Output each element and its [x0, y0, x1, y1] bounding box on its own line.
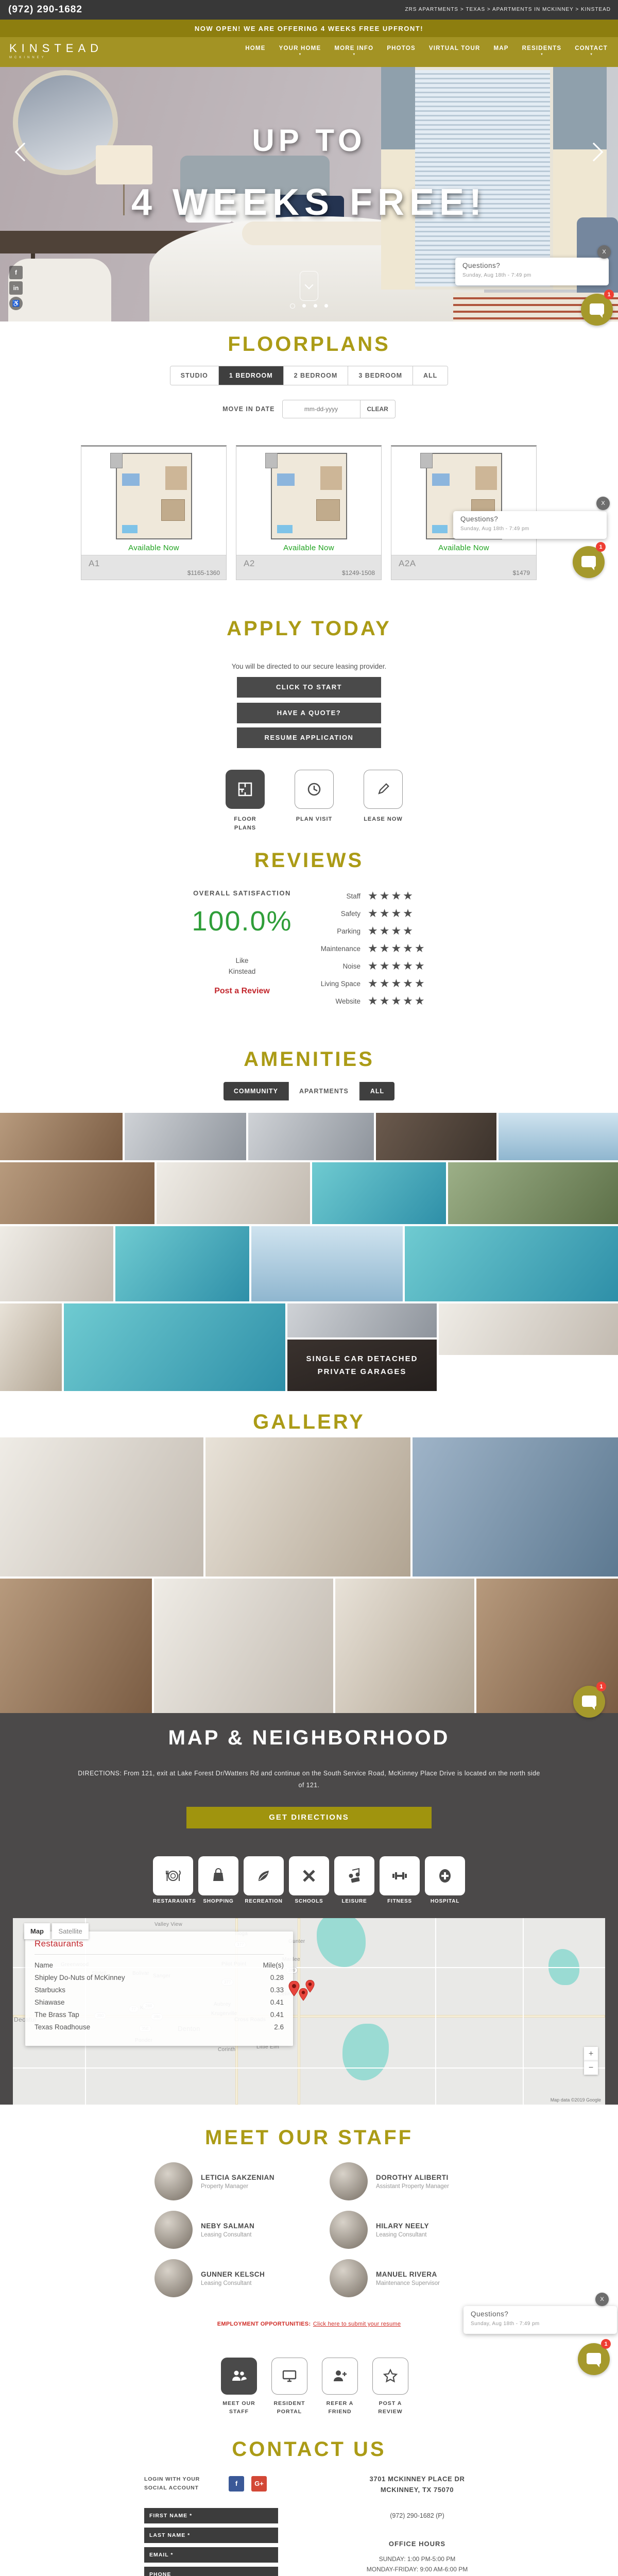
logo-text: KINSTEAD — [9, 42, 103, 55]
chat-icon-tail — [591, 1705, 595, 1710]
quick-link-label: LEASE NOW — [362, 815, 405, 824]
office-hours-sunday: SUNDAY: 1:00 PM-5:00 PM — [340, 2554, 494, 2564]
poi-category-buttons — [153, 1856, 465, 1895]
facebook-login-button[interactable]: f — [229, 2476, 244, 2492]
medical-cross-icon — [435, 1866, 455, 1886]
social-login-label: LOGIN WITH YOUR SOCIAL ACCOUNT — [144, 2475, 221, 2493]
chat-popup-time: Sunday, Aug 18th - 7:49 pm — [471, 2321, 610, 2327]
fitness-category-button[interactable] — [380, 1856, 420, 1895]
contact-section: CONTACT US LOGIN WITH YOUR SOCIAL ACCOUN… — [0, 2421, 618, 2576]
office-hours-title: OFFICE HOURS — [340, 2540, 494, 2548]
meet-our-staff-button[interactable] — [221, 2358, 257, 2395]
amenity-photo[interactable] — [125, 1113, 246, 1160]
staff-member: DOROTHY ALIBERTIAssistant Property Manag… — [330, 2162, 479, 2200]
staff-quick-links: MEET OUR STAFF RESIDENT PORTAL REFER A F… — [0, 2349, 618, 2421]
floorplan-price: $1165-1360 — [187, 569, 220, 577]
refer-a-friend-button[interactable] — [322, 2358, 358, 2395]
amenities-tabs: COMMUNITY APARTMENTS ALL — [224, 1082, 394, 1100]
map-section-title: MAP & NEIGHBORHOOD — [0, 1726, 618, 1750]
map-pin-icon[interactable] — [305, 1980, 315, 1993]
garage-tile-line1: SINGLE CAR DETACHED — [306, 1352, 418, 1366]
floorplan-card-a2[interactable]: Available Now A2 $1249-1508 — [236, 445, 382, 580]
amenity-photo[interactable] — [287, 1303, 437, 1337]
floorplan-image — [116, 453, 192, 539]
tab-1-bedroom[interactable]: 1 BEDROOM — [219, 366, 284, 385]
breadcrumb-mckinney[interactable]: APARTMENTS IN MCKINNEY — [492, 7, 574, 12]
directions-text: DIRECTIONS: From 121, exit at Lake Fores… — [77, 1768, 541, 1791]
google-login-button[interactable]: G+ — [251, 2476, 267, 2492]
carousel-dot[interactable] — [314, 304, 317, 308]
poi-category-labels: RESTARAUNTS SHOPPING RECREATION SCHOOLS … — [153, 1899, 465, 1904]
clear-date-button[interactable]: CLEAR — [360, 400, 395, 418]
amenity-photo[interactable] — [0, 1226, 113, 1301]
gallery-photo[interactable] — [205, 1437, 410, 1577]
apply-title: APPLY TODAY — [0, 617, 618, 640]
poi-table-row[interactable]: Texas Roadhouse2.6 — [35, 2021, 284, 2033]
page: (972) 290-1682 ZRS APARTMENTS > TEXAS > … — [0, 0, 618, 2576]
restaurant-icon — [163, 1866, 183, 1886]
floorplans-tabs-wrap: STUDIO 1 BEDROOM 2 BEDROOM 3 BEDROOM ALL — [0, 366, 618, 385]
staff-avatar — [330, 2162, 368, 2200]
chat-popup-title: Questions? — [462, 262, 602, 269]
rating-row: Safety★★★★ — [278, 905, 426, 922]
chat-unread-badge: 1 — [601, 2339, 611, 2349]
promo-banner-text: NOW OPEN! WE ARE OFFERING 4 WEEKS FREE U… — [195, 25, 423, 32]
gallery-photo[interactable] — [413, 1437, 618, 1577]
map-town-label: Valley View — [154, 1922, 182, 1927]
employment-link[interactable]: Click here to submit your resume — [313, 2321, 401, 2327]
site-header: KINSTEAD MCKINNEY HOME▼ YOUR HOME▼ MORE … — [0, 37, 618, 67]
gallery-photo[interactable] — [0, 1579, 152, 1713]
reviews-title: REVIEWS — [0, 849, 618, 872]
chat-icon-tail — [595, 2363, 599, 2367]
amenity-photo[interactable] — [448, 1162, 618, 1224]
road-line — [13, 2067, 605, 2069]
map-section: MAP & NEIGHBORHOOD DIRECTIONS: From 121,… — [0, 1713, 618, 2105]
carousel-dots — [0, 301, 618, 311]
floorplans-title: FLOORPLANS — [0, 333, 618, 356]
chat-unread-badge: 1 — [596, 542, 606, 552]
chat-bubble-button[interactable]: 1 — [573, 542, 605, 579]
divider — [35, 1954, 284, 1955]
map-pin-icon[interactable] — [288, 1981, 300, 1996]
amenity-photo[interactable] — [312, 1162, 446, 1224]
facebook-icon[interactable]: f — [9, 266, 23, 279]
breadcrumb: ZRS APARTMENTS > TEXAS > APARTMENTS IN M… — [405, 7, 611, 12]
scroll-down-button[interactable] — [300, 271, 318, 301]
rating-row: Parking★★★★ — [278, 922, 426, 940]
tab-apartments[interactable]: APARTMENTS — [289, 1082, 359, 1100]
poi-panel-title: Restaurants — [35, 1939, 284, 1949]
chat-icon-tail — [590, 566, 594, 570]
move-in-row: MOVE IN DATE CLEAR — [0, 400, 618, 418]
amenity-photo[interactable] — [499, 1113, 618, 1160]
rating-row: Maintenance★★★★★ — [278, 940, 426, 957]
tab-2-bedroom[interactable]: 2 BEDROOM — [284, 366, 349, 385]
office-hours-weekday: MONDAY-FRIDAY: 9:00 AM-6:00 PM — [340, 2564, 494, 2574]
apply-note: You will be directed to our secure leasi… — [0, 663, 618, 670]
chat-icon-tail — [598, 313, 603, 318]
amenity-photo[interactable] — [115, 1226, 249, 1301]
amenity-photo[interactable] — [0, 1113, 123, 1160]
availability-status: Available Now — [81, 544, 226, 552]
floorplan-image — [271, 453, 347, 539]
floorplan-card-footer: A2 $1249-1508 — [236, 555, 381, 580]
quick-link-label: POST A REVIEW — [372, 2400, 409, 2416]
poi-table-row[interactable]: Starbucks0.33 — [35, 1984, 284, 1996]
road-line — [435, 1918, 436, 2105]
tab-all[interactable]: ALL — [359, 1082, 394, 1100]
staff-quick-boxes: MEET OUR STAFF RESIDENT PORTAL REFER A F… — [220, 2358, 409, 2416]
chevron-down-icon: ▼ — [352, 53, 355, 56]
pencil-icon — [373, 779, 393, 800]
amenities-title: AMENITIES — [0, 1048, 618, 1071]
tab-studio[interactable]: STUDIO — [170, 366, 219, 385]
staff-avatar — [154, 2162, 193, 2200]
school-supplies-icon — [299, 1866, 319, 1886]
schools-category-button[interactable] — [289, 1856, 329, 1895]
star-rating: ★★★★★ — [368, 977, 426, 990]
add-person-icon — [330, 2366, 350, 2386]
chevron-down-icon: ▼ — [590, 53, 593, 56]
rating-row: Living Space★★★★★ — [278, 975, 426, 992]
star-rating: ★★★★★ — [368, 959, 426, 973]
hospital-category-button[interactable] — [425, 1856, 465, 1895]
music-ticket-icon — [344, 1866, 365, 1886]
chat-popup-title: Questions? — [471, 2310, 610, 2318]
chat-popup[interactable]: Questions? Sunday, Aug 18th - 7:49 pm — [453, 511, 607, 539]
tab-3-bedroom[interactable]: 3 BEDROOM — [348, 366, 413, 385]
map-zoom-control: + − — [584, 2047, 598, 2075]
highway-289 — [298, 1918, 300, 2105]
carousel-dot[interactable] — [324, 304, 328, 308]
shopping-category-button[interactable] — [198, 1856, 238, 1895]
contact-address-line1: 3701 MCKINNEY PLACE DR — [340, 2475, 494, 2483]
poi-results-panel: Restaurants NameMile(s) Shipley Do-Nuts … — [25, 1931, 293, 2046]
floorplan-name: A2A — [399, 558, 416, 569]
ratings-list: Staff★★★★ Safety★★★★ Parking★★★★ Mainten… — [278, 887, 426, 1010]
chat-bubble-button[interactable]: 1 — [578, 2339, 610, 2376]
apply-section: APPLY TODAY You will be directed to our … — [0, 581, 618, 829]
leisure-category-button[interactable] — [334, 1856, 374, 1895]
chat-bubble-button[interactable]: 1 — [573, 1682, 605, 1719]
recreation-category-button[interactable] — [244, 1856, 284, 1895]
availability-status: Available Now — [236, 544, 381, 552]
amenities-photo-grid: SINGLE CAR DETACHED PRIVATE GARAGES — [0, 1113, 618, 1391]
staff-member: GUNNER KELSCHLeasing Consultant — [154, 2259, 304, 2297]
breadcrumb-separator: > — [575, 7, 579, 12]
quick-link-label: PLAN VISIT — [293, 815, 336, 824]
staff-member: NEBY SALMANLeasing Consultant — [154, 2211, 304, 2249]
contact-info-block: 3701 MCKINNEY PLACE DR MCKINNEY, TX 7507… — [340, 2475, 494, 2576]
floorplan-icon — [235, 779, 255, 800]
employment-prefix: EMPLOYMENT OPPORTUNITIES: — [217, 2321, 311, 2327]
carousel-dot-active[interactable] — [290, 303, 295, 309]
contact-address-line2: MCKINNEY, TX 75070 — [340, 2486, 494, 2494]
nav-item-photos[interactable]: PHOTOS▼ — [387, 45, 416, 56]
amenity-photo[interactable] — [157, 1162, 310, 1224]
floorplans-tabs: STUDIO 1 BEDROOM 2 BEDROOM 3 BEDROOM ALL — [170, 366, 449, 385]
chat-popup-time: Sunday, Aug 18th - 7:49 pm — [460, 526, 599, 532]
monitor-icon — [279, 2366, 300, 2386]
carousel-dot[interactable] — [302, 304, 306, 308]
gallery-photo[interactable] — [335, 1579, 474, 1713]
plan-visit-quick-button[interactable] — [295, 770, 334, 809]
reviews-section: REVIEWS OVERALL SATISFACTION 100.0% Like… — [0, 829, 618, 1041]
road-line — [523, 1918, 524, 2105]
amenities-tabs-wrap: COMMUNITY APARTMENTS ALL — [0, 1082, 618, 1100]
linkedin-icon[interactable]: in — [9, 281, 23, 295]
rating-row: Staff★★★★ — [278, 887, 426, 905]
dumbbell-icon — [389, 1866, 410, 1886]
map-type-map-button[interactable]: Map — [24, 1923, 50, 1939]
leaf-icon — [253, 1866, 274, 1886]
rating-row: Noise★★★★★ — [278, 957, 426, 975]
have-a-quote-button[interactable]: HAVE A QUOTE? — [237, 703, 381, 723]
garage-tile-line2: PRIVATE GARAGES — [318, 1365, 407, 1379]
floorplan-price: $1249-1508 — [342, 569, 375, 577]
star-rating: ★★★★ — [368, 907, 415, 920]
social-login-row: LOGIN WITH YOUR SOCIAL ACCOUNT f G+ — [144, 2475, 267, 2493]
clock-icon — [304, 779, 324, 800]
gallery-photo[interactable] — [0, 1437, 203, 1577]
tab-community[interactable]: COMMUNITY — [224, 1082, 289, 1100]
lease-now-quick-button[interactable] — [364, 770, 403, 809]
star-rating: ★★★★★ — [368, 942, 426, 955]
move-in-date-input[interactable] — [283, 400, 360, 418]
get-directions-button[interactable]: GET DIRECTIONS — [186, 1807, 432, 1828]
nav-item-residents[interactable]: RESIDENTS▼ — [522, 45, 562, 56]
amenity-photo[interactable] — [0, 1162, 154, 1224]
staff-avatar — [330, 2259, 368, 2297]
post-a-review-button[interactable] — [372, 2358, 408, 2395]
chat-unread-badge: 1 — [596, 1682, 606, 1691]
hero-promo-line1: UP TO — [0, 123, 618, 158]
amenity-photo[interactable] — [251, 1226, 403, 1301]
map-town-label: Corinth — [218, 2047, 235, 2053]
chat-popup[interactable]: Questions? Sunday, Aug 18th - 7:49 pm — [463, 2306, 617, 2334]
map-canvas[interactable]: Rosston Valley View Tioga Gunter Pilot P… — [13, 1918, 605, 2105]
amenity-photo[interactable] — [0, 1303, 62, 1391]
amenity-photo[interactable] — [439, 1303, 618, 1355]
chevron-down-icon: ▼ — [540, 53, 543, 56]
map-type-satellite-button[interactable]: Satellite — [52, 1923, 88, 1939]
breadcrumb-separator: > — [487, 7, 491, 12]
garage-amenity-tile[interactable]: SINGLE CAR DETACHED PRIVATE GARAGES — [287, 1340, 437, 1391]
star-rating: ★★★★ — [368, 924, 415, 938]
chat-close-button[interactable]: X — [596, 497, 610, 510]
apply-quick-links: FLOOR PLANS PLAN VISIT LEASE NOW — [224, 770, 405, 832]
nav-item-contact[interactable]: CONTACT▼ — [575, 45, 608, 56]
nav-item-more-info[interactable]: MORE INFO▼ — [334, 45, 373, 56]
poi-table-header: NameMile(s) — [35, 1959, 284, 1971]
poi-table-row[interactable]: The Brass Tap0.41 — [35, 2008, 284, 2021]
amenity-photo[interactable] — [64, 1303, 285, 1391]
chat-popup-title: Questions? — [460, 515, 599, 523]
staff-avatar — [330, 2211, 368, 2249]
nav-item-map[interactable]: MAP▼ — [493, 45, 508, 56]
staff-avatar — [154, 2259, 193, 2297]
hero-throw-decor — [242, 222, 397, 245]
staff-member: HILARY NEELYLeasing Consultant — [330, 2211, 479, 2249]
chat-unread-badge: 1 — [604, 290, 614, 299]
phone-field[interactable] — [144, 2567, 278, 2576]
quick-link-label: REFER A FRIEND — [321, 2400, 358, 2416]
lake-shape — [317, 1918, 366, 1967]
gallery-section: GALLERY — [0, 1401, 618, 1713]
star-rating: ★★★★★ — [368, 994, 426, 1008]
first-name-field[interactable] — [144, 2508, 278, 2523]
last-name-field[interactable] — [144, 2528, 278, 2543]
staff-avatar — [154, 2211, 193, 2249]
staff-title: MEET OUR STAFF — [0, 2126, 618, 2149]
hero-promo-line2: 4 WEEKS FREE! — [0, 181, 618, 224]
zoom-in-button[interactable]: + — [584, 2047, 598, 2061]
chevron-down-icon: ▼ — [298, 53, 301, 56]
staff-member: MANUEL RIVERAMaintenance Supervisor — [330, 2259, 479, 2297]
chat-popup-time: Sunday, Aug 18th - 7:49 pm — [462, 273, 602, 278]
zoom-out-button[interactable]: − — [584, 2061, 598, 2075]
star-rating: ★★★★ — [368, 889, 415, 903]
shopping-bag-icon — [208, 1866, 229, 1886]
move-in-date-label: MOVE IN DATE — [222, 405, 274, 413]
resume-application-button[interactable]: RESUME APPLICATION — [237, 727, 381, 748]
promo-banner: NOW OPEN! WE ARE OFFERING 4 WEEKS FREE U… — [0, 20, 618, 37]
email-field[interactable] — [144, 2547, 278, 2563]
map-attribution: Map data ©2019 Google — [551, 2097, 601, 2103]
nav-item-your-home[interactable]: YOUR HOME▼ — [279, 45, 321, 56]
nav-item-home[interactable]: HOME▼ — [245, 45, 265, 56]
poi-table-row[interactable]: Shiawase0.41 — [35, 1996, 284, 2008]
hero-chair-decor — [8, 259, 111, 321]
breadcrumb-kinstead[interactable]: KINSTEAD — [581, 7, 611, 12]
gallery-photo-grid — [0, 1437, 618, 1713]
tab-all[interactable]: ALL — [413, 366, 448, 385]
star-icon — [380, 2366, 401, 2386]
rating-row: Website★★★★★ — [278, 992, 426, 1010]
chat-bubble-button[interactable]: 1 — [581, 290, 613, 327]
floorplan-card-a1[interactable]: Available Now A1 $1165-1360 — [81, 445, 227, 580]
quick-link-label: RESIDENT PORTAL — [271, 2400, 308, 2416]
nav-item-virtual-tour[interactable]: VIRTUAL TOUR▼ — [429, 45, 480, 56]
floor-plans-quick-button[interactable] — [226, 770, 265, 809]
restaurants-category-button[interactable] — [153, 1856, 193, 1895]
floorplan-name: A1 — [89, 558, 100, 569]
map-type-control: Map Satellite — [24, 1923, 89, 1939]
floorplan-price: $1479 — [513, 569, 530, 577]
main-nav: HOME▼ YOUR HOME▼ MORE INFO▼ PHOTOS▼ VIRT… — [245, 45, 608, 56]
floorplan-card-footer: A2A $1479 — [391, 555, 536, 580]
contact-title: CONTACT US — [0, 2438, 618, 2461]
poi-table-row[interactable]: Shipley Do-Nuts of McKinney0.28 — [35, 1971, 284, 1984]
quick-link-label: MEET OUR STAFF — [220, 2400, 257, 2416]
chat-close-button[interactable]: X — [597, 245, 611, 259]
people-icon — [229, 2366, 249, 2386]
breadcrumb-zrs[interactable]: ZRS APARTMENTS — [405, 7, 458, 12]
floorplan-card-footer: A1 $1165-1360 — [81, 555, 226, 580]
breadcrumb-texas[interactable]: TEXAS — [466, 7, 485, 12]
chat-popup[interactable]: Questions? Sunday, Aug 18th - 7:49 pm — [455, 258, 609, 285]
phone-number[interactable]: (972) 290-1682 — [8, 4, 82, 15]
chevron-down-icon — [305, 281, 314, 290]
contact-phone[interactable]: (972) 290-1682 (P) — [340, 2512, 494, 2519]
amenities-section: AMENITIES COMMUNITY APARTMENTS ALL — [0, 1041, 618, 1401]
floorplan-name: A2 — [244, 558, 255, 569]
click-to-start-button[interactable]: CLICK TO START — [237, 677, 381, 698]
logo-subtext: MCKINNEY — [9, 56, 103, 59]
breadcrumb-separator: > — [460, 7, 464, 12]
availability-status: Available Now — [391, 544, 536, 552]
amenity-photo[interactable] — [405, 1226, 618, 1301]
chat-close-button[interactable]: X — [595, 2293, 609, 2306]
amenity-photo[interactable] — [248, 1113, 374, 1160]
lake-shape — [342, 2024, 389, 2080]
floorplans-section: FLOORPLANS STUDIO 1 BEDROOM 2 BEDROOM 3 … — [0, 321, 618, 581]
top-bar: (972) 290-1682 ZRS APARTMENTS > TEXAS > … — [0, 0, 618, 20]
resident-portal-button[interactable] — [271, 2358, 307, 2395]
gallery-photo[interactable] — [154, 1579, 333, 1713]
gallery-title: GALLERY — [0, 1411, 618, 1434]
logo[interactable]: KINSTEAD MCKINNEY — [9, 42, 103, 59]
staff-member: LETICIA SAKZENIANProperty Manager — [154, 2162, 304, 2200]
amenity-photo[interactable] — [376, 1113, 496, 1160]
